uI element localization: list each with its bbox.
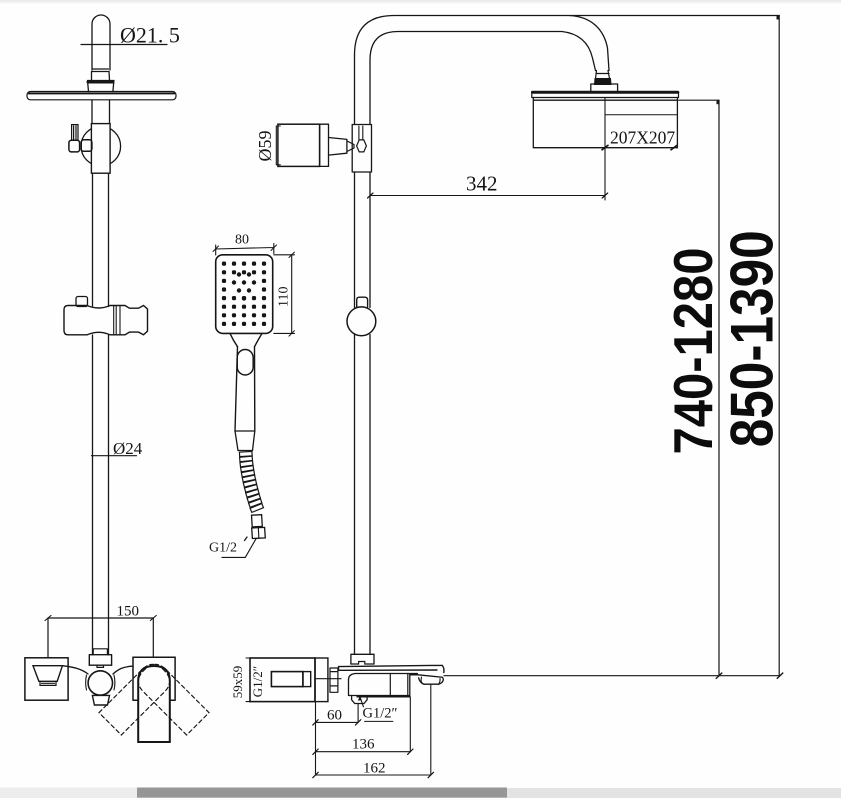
svg-text:60: 60 — [327, 708, 342, 724]
svg-text:80: 80 — [235, 233, 249, 248]
svg-text:Ø21. 5: Ø21. 5 — [120, 23, 180, 48]
svg-text:207X207: 207X207 — [610, 128, 675, 148]
svg-text:110: 110 — [277, 287, 292, 307]
svg-text:136: 136 — [352, 737, 375, 753]
svg-text:150: 150 — [117, 604, 140, 620]
svg-text:342: 342 — [466, 172, 498, 196]
svg-text:G1/2: G1/2 — [209, 541, 237, 556]
svg-text:Ø24: Ø24 — [113, 439, 143, 458]
svg-text:162: 162 — [363, 761, 386, 777]
svg-text:59x59: 59x59 — [230, 666, 245, 699]
svg-text:G1/2″: G1/2″ — [250, 666, 265, 697]
svg-text:G1/2″: G1/2″ — [363, 706, 398, 722]
svg-text:850-1390: 850-1390 — [719, 230, 786, 447]
svg-text:740-1280: 740-1280 — [662, 248, 724, 455]
svg-text:Ø59: Ø59 — [255, 131, 275, 162]
